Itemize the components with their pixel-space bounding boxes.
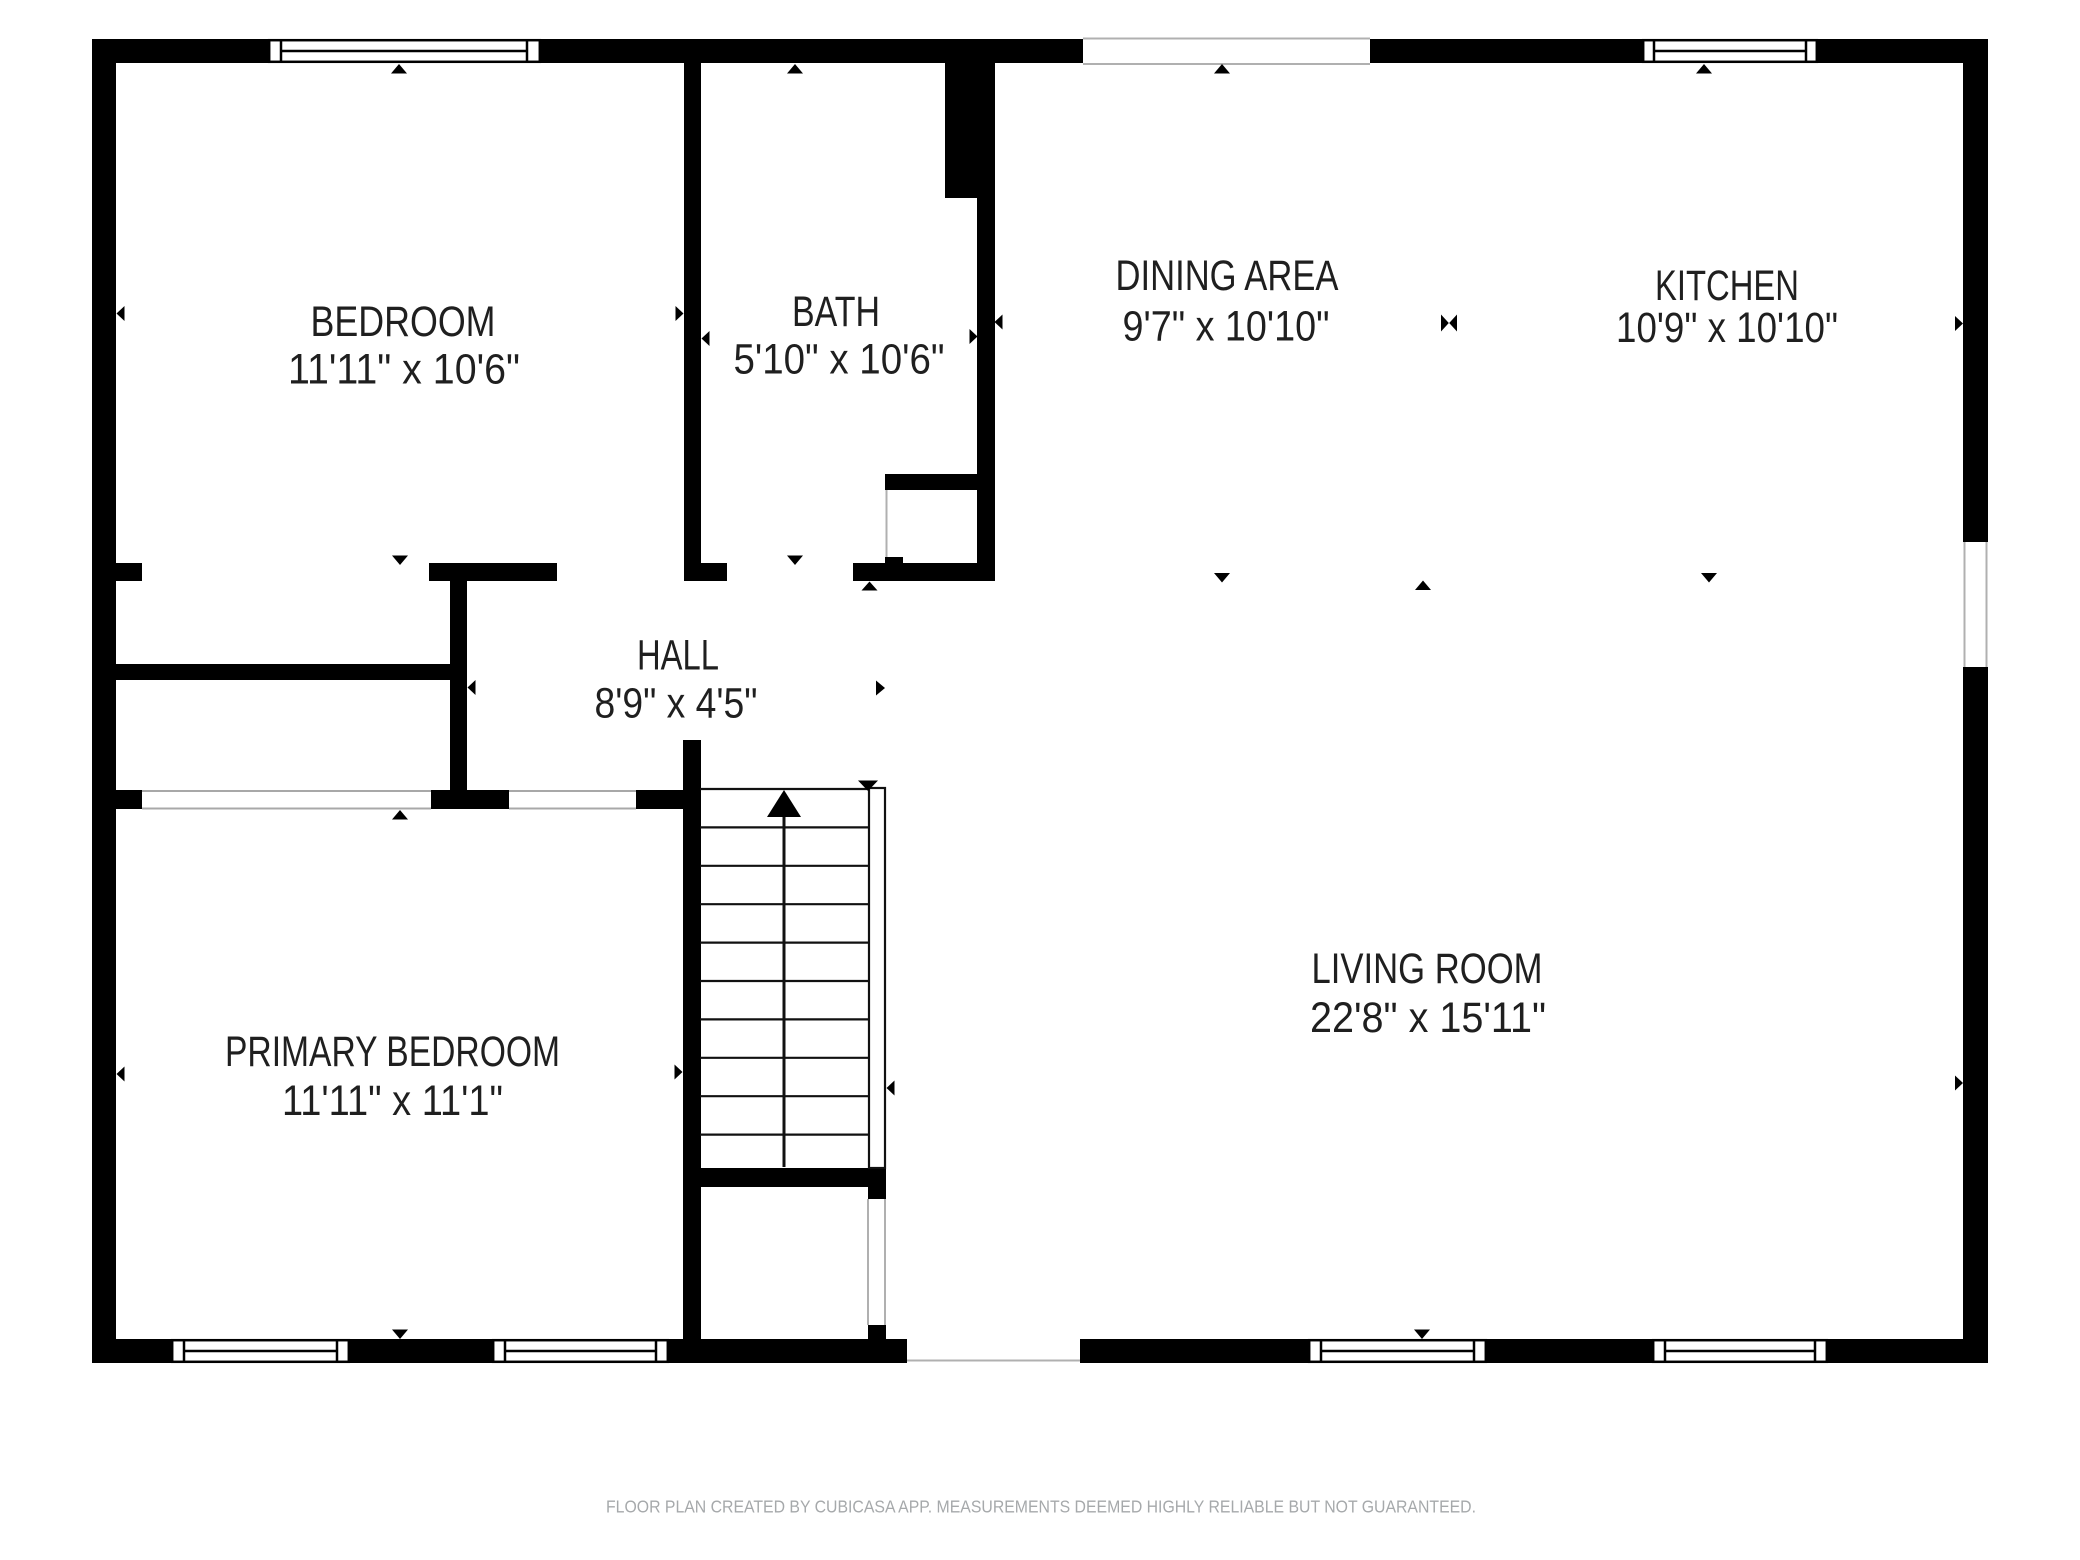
svg-text:9'7" x 10'10": 9'7" x 10'10" (1123, 303, 1330, 351)
svg-text:LIVING ROOM: LIVING ROOM (1312, 945, 1543, 993)
svg-text:PRIMARY BEDROOM: PRIMARY BEDROOM (225, 1028, 560, 1076)
svg-text:11'11" x 10'6": 11'11" x 10'6" (288, 346, 520, 394)
svg-text:5'10" x 10'6": 5'10" x 10'6" (734, 336, 945, 384)
svg-text:FLOOR PLAN CREATED BY CUBICASA: FLOOR PLAN CREATED BY CUBICASA APP. MEAS… (606, 1497, 1476, 1517)
svg-text:11'11" x 11'1": 11'11" x 11'1" (282, 1077, 503, 1125)
svg-text:KITCHEN: KITCHEN (1655, 262, 1799, 310)
svg-text:BATH: BATH (792, 288, 880, 336)
svg-text:BEDROOM: BEDROOM (311, 298, 496, 346)
svg-text:22'8" x 15'11": 22'8" x 15'11" (1310, 994, 1546, 1042)
svg-text:10'9" x 10'10": 10'9" x 10'10" (1616, 304, 1838, 352)
svg-text:8'9" x 4'5": 8'9" x 4'5" (595, 680, 758, 728)
svg-text:HALL: HALL (637, 632, 719, 680)
svg-text:DINING AREA: DINING AREA (1116, 252, 1339, 300)
